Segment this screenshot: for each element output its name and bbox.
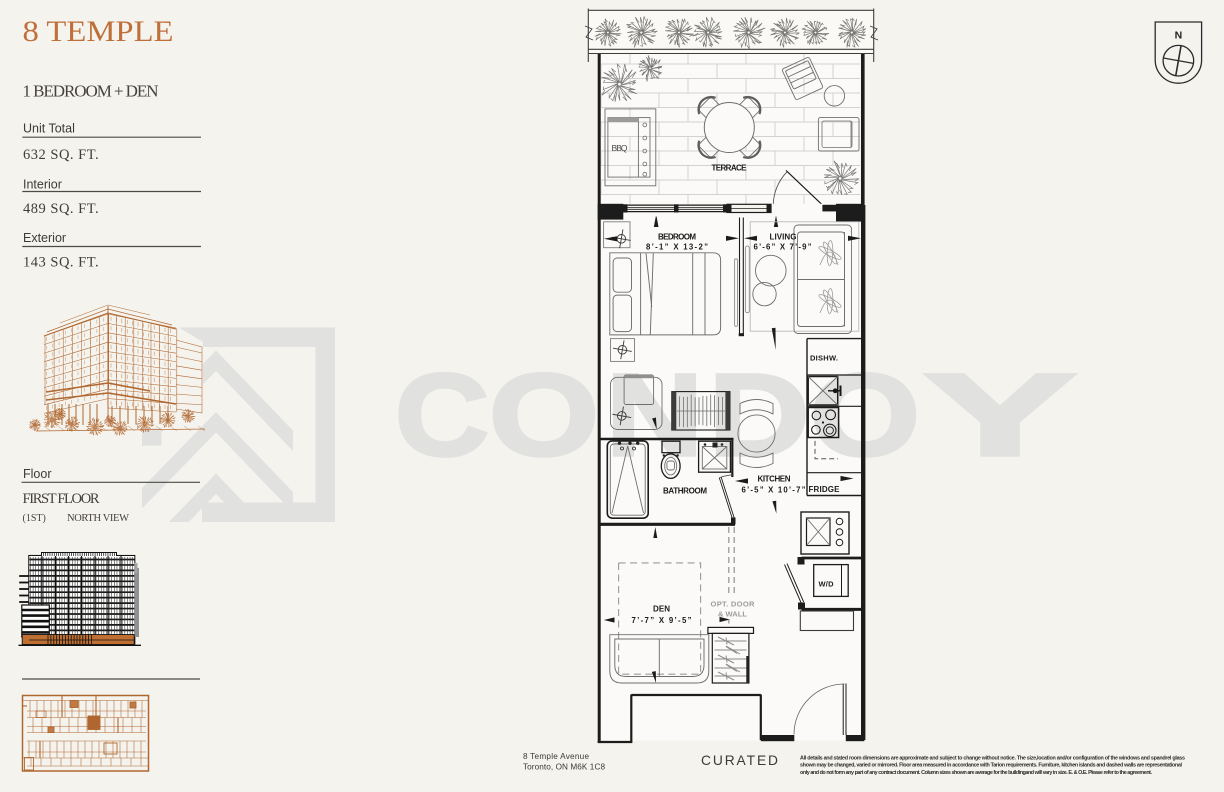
svg-text:shown may be changed, varied o: shown may be changed, varied or mirrored…	[800, 763, 1183, 769]
svg-text:BATHROOM: BATHROOM	[663, 487, 707, 496]
svg-text:Exterior: Exterior	[23, 231, 66, 245]
svg-text:N: N	[606, 350, 703, 480]
svg-text:DEN: DEN	[653, 605, 670, 614]
svg-text:Floor: Floor	[23, 467, 51, 481]
svg-text:8’-1” X 13-2”: 8’-1” X 13-2”	[646, 243, 708, 252]
svg-text:TERRACE: TERRACE	[712, 164, 748, 173]
svg-text:8 TEMPLE: 8 TEMPLE	[23, 15, 174, 48]
svg-text:143 SQ. FT.: 143 SQ. FT.	[23, 255, 99, 271]
svg-text:O: O	[489, 350, 599, 480]
svg-text:(1ST): (1ST)	[23, 513, 46, 524]
svg-text:N: N	[1175, 30, 1183, 42]
svg-text:BEDROOM: BEDROOM	[658, 232, 696, 241]
svg-text:NORTH VIEW: NORTH VIEW	[67, 513, 129, 524]
svg-text:All details and stated room di: All details and stated room dimensions a…	[800, 755, 1185, 761]
svg-text:only and do not form any part: only and do not form any part of any con…	[800, 770, 1153, 776]
svg-text:FIRST FLOOR: FIRST FLOOR	[23, 491, 100, 507]
svg-text:FRIDGE: FRIDGE	[809, 485, 841, 494]
svg-text:C: C	[395, 350, 489, 480]
svg-text:& WALL: & WALL	[718, 610, 747, 619]
svg-text:6’-6” X 7’-9”: 6’-6” X 7’-9”	[754, 243, 812, 252]
svg-text:6’-5” X 10’-7”: 6’-5” X 10’-7”	[742, 485, 806, 494]
svg-text:489 SQ. FT.: 489 SQ. FT.	[23, 201, 99, 217]
svg-text:632 SQ. FT.: 632 SQ. FT.	[23, 147, 99, 163]
svg-text:DISHW.: DISHW.	[810, 354, 838, 363]
svg-text:1 BEDROOM + DEN: 1 BEDROOM + DEN	[23, 82, 159, 101]
svg-text:Toronto, ON M6K 1C8: Toronto, ON M6K 1C8	[523, 763, 605, 772]
svg-text:Y: Y	[924, 350, 1076, 480]
svg-text:8 Temple Avenue: 8 Temple Avenue	[523, 752, 589, 761]
svg-text:7’-7” X 9’-5”: 7’-7” X 9’-5”	[632, 616, 692, 625]
svg-text:OPT. DOOR: OPT. DOOR	[711, 600, 756, 609]
svg-text:W/D: W/D	[819, 580, 835, 589]
svg-text:BBQ: BBQ	[612, 143, 628, 153]
svg-text:KITCHEN: KITCHEN	[758, 474, 791, 483]
svg-text:Interior: Interior	[23, 177, 62, 191]
svg-text:LIVING: LIVING	[770, 232, 797, 241]
svg-text:Unit Total: Unit Total	[23, 122, 75, 136]
